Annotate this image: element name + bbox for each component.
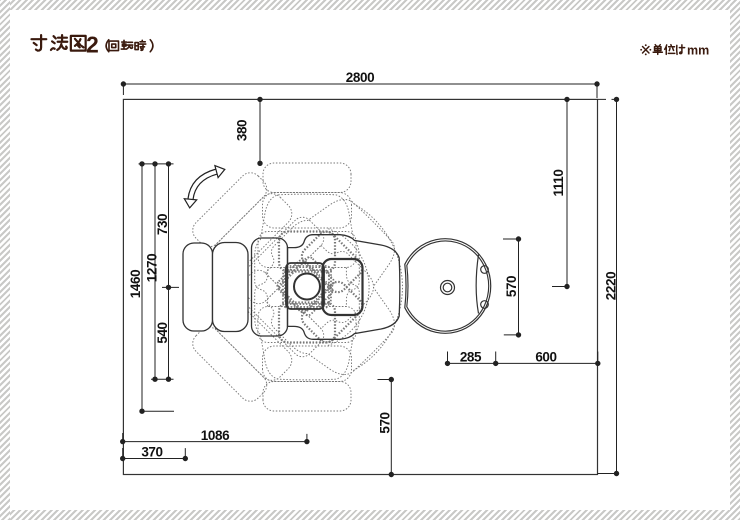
svg-text:600: 600 [535, 350, 556, 365]
svg-text:540: 540 [155, 322, 170, 343]
svg-text:380: 380 [235, 120, 250, 141]
svg-text:2220: 2220 [604, 272, 619, 300]
svg-text:370: 370 [141, 445, 162, 460]
svg-text:570: 570 [378, 412, 393, 433]
svg-text:1270: 1270 [145, 254, 160, 282]
svg-text:2800: 2800 [346, 70, 374, 85]
svg-text:mm: mm [687, 44, 709, 58]
svg-text:730: 730 [155, 214, 170, 235]
svg-text:1086: 1086 [201, 428, 230, 443]
svg-text:1460: 1460 [128, 270, 143, 298]
svg-text:1110: 1110 [551, 170, 566, 197]
svg-text:570: 570 [504, 276, 519, 297]
svg-text:2: 2 [86, 32, 99, 58]
svg-text:285: 285 [460, 350, 482, 365]
